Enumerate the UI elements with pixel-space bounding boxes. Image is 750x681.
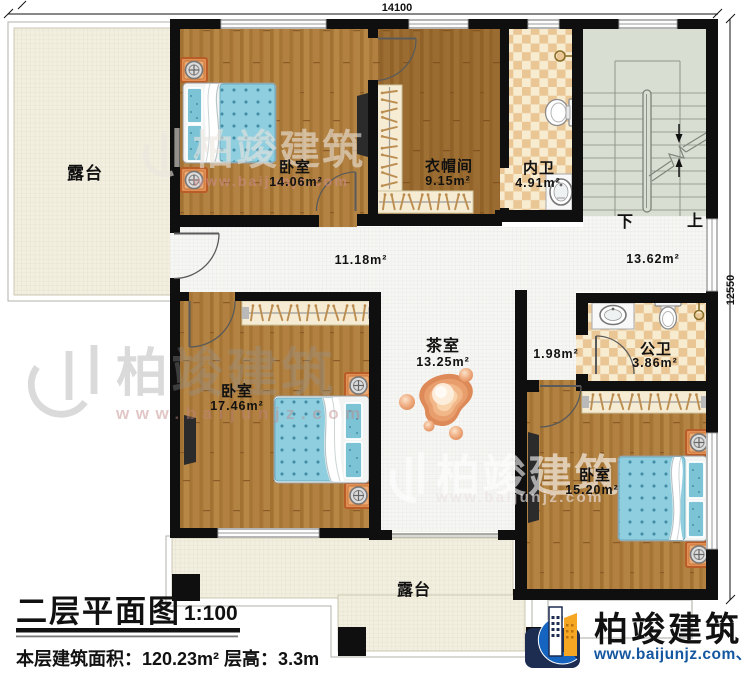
svg-text:下: 下 xyxy=(617,214,633,231)
svg-text:本层建筑面积：120.23m² 层高：3.3m: 本层建筑面积：120.23m² 层高：3.3m xyxy=(16,648,319,669)
svg-text:上: 上 xyxy=(687,212,703,230)
svg-text:卧室: 卧室 xyxy=(579,466,611,484)
svg-text:1.98m²: 1.98m² xyxy=(533,347,579,361)
svg-text:二层平面图: 二层平面图 xyxy=(16,594,181,629)
svg-text:13.25m²: 13.25m² xyxy=(416,355,470,369)
svg-text:12550: 12550 xyxy=(725,275,737,306)
svg-text:卧室: 卧室 xyxy=(221,382,253,400)
svg-text:9.15m²: 9.15m² xyxy=(425,174,471,188)
svg-text:14100: 14100 xyxy=(382,2,413,14)
svg-text:14.06m²: 14.06m² xyxy=(269,175,323,189)
svg-text:13.62m²: 13.62m² xyxy=(626,252,680,266)
svg-text:柏竣建筑: 柏竣建筑 xyxy=(594,610,742,649)
svg-text:衣帽间: 衣帽间 xyxy=(425,157,473,175)
svg-text:内卫: 内卫 xyxy=(523,159,555,177)
svg-text:3.86m²: 3.86m² xyxy=(632,356,678,370)
svg-text:www.baijunjz.com、: www.baijunjz.com、 xyxy=(593,646,750,663)
svg-text:1:100: 1:100 xyxy=(184,602,238,625)
svg-text:卧室: 卧室 xyxy=(279,158,311,176)
svg-text:4.91m²: 4.91m² xyxy=(515,176,561,190)
svg-text:17.46m²: 17.46m² xyxy=(210,399,264,413)
svg-text:11.18m²: 11.18m² xyxy=(335,253,388,267)
svg-text:茶室: 茶室 xyxy=(425,336,460,355)
svg-text:15.20m²: 15.20m² xyxy=(565,483,619,497)
svg-text:露台: 露台 xyxy=(397,580,431,599)
svg-text:露台: 露台 xyxy=(67,163,103,183)
